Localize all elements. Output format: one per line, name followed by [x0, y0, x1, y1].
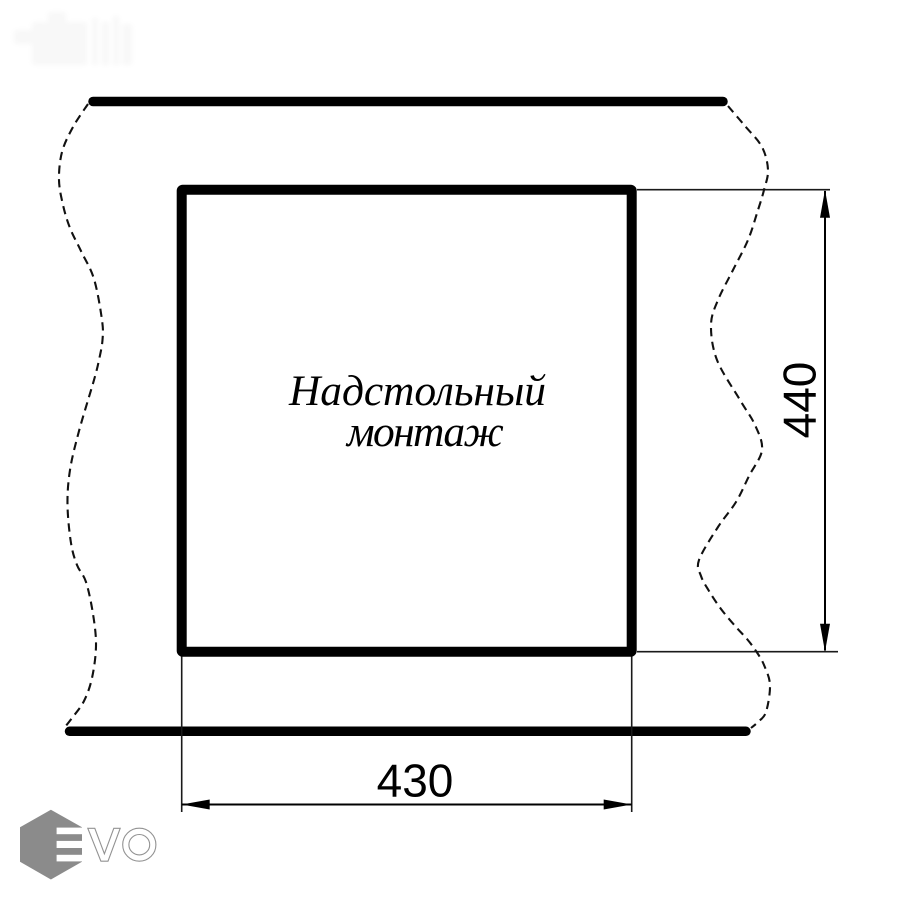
svg-text:440: 440: [774, 362, 826, 439]
svg-text:430: 430: [377, 755, 454, 807]
svg-text:монтаж: монтаж: [345, 408, 504, 456]
